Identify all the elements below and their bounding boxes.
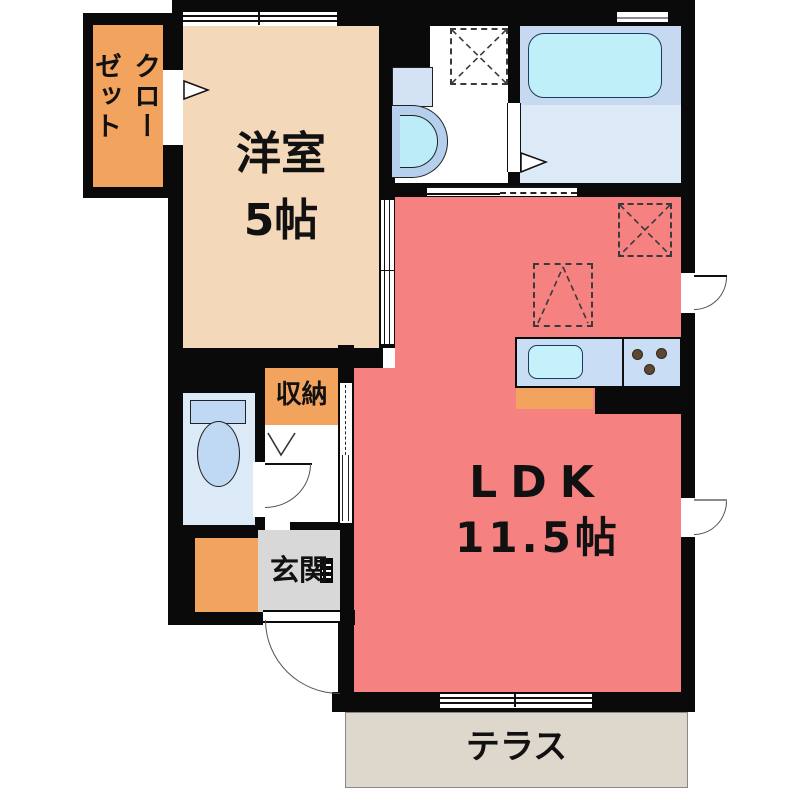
window-bathroom-small — [617, 12, 668, 22]
stove-burner — [632, 349, 643, 360]
wall — [681, 0, 695, 712]
window-casement-2 — [681, 498, 695, 537]
wall — [595, 388, 682, 414]
closet-label: クローゼット — [90, 52, 164, 164]
toilet-bowl — [197, 421, 240, 487]
washing-machine-space — [450, 28, 508, 85]
wall — [340, 610, 355, 625]
ldk-label: LDK — [395, 458, 681, 509]
window-top-sliding — [183, 12, 337, 26]
entrance-step — [195, 538, 258, 612]
stove-burner — [656, 348, 667, 359]
ldk-size: 11.5帖 — [395, 514, 681, 562]
window-terrace-sliding — [440, 694, 592, 708]
stove-burner — [644, 364, 655, 375]
door-toilet-swing — [265, 464, 311, 508]
wall — [168, 368, 265, 393]
western-room-size: 5帖 — [183, 196, 379, 247]
refrigerator-space — [618, 203, 672, 257]
kitchen-step — [516, 388, 593, 409]
floor-plan: クローゼット 洋室 5帖 LDK 11.5帖 収納 玄関 テラス — [0, 0, 800, 800]
door-western-ldk-sliding — [381, 200, 394, 344]
window-casement-2-swing — [694, 501, 727, 535]
terrace-label: テラス — [345, 728, 688, 767]
western-room-label: 洋室 — [183, 128, 379, 180]
door-entrance-swing — [265, 620, 340, 694]
door-bathroom — [507, 103, 521, 172]
room-western — [183, 26, 379, 348]
wall — [168, 393, 183, 538]
door-closet-opening — [163, 70, 183, 145]
door-washroom-sliding — [427, 186, 577, 196]
door-toilet-leaf — [253, 462, 265, 517]
door-hall-ldk-sliding — [340, 383, 352, 523]
entrance-label: 玄関 — [256, 554, 342, 587]
bathtub-fixture — [528, 33, 662, 98]
wall — [168, 610, 263, 625]
washroom-counter — [392, 67, 433, 107]
kitchen-sink — [528, 345, 583, 379]
storage-door-v — [268, 433, 295, 455]
window-casement-1-swing — [694, 277, 727, 310]
wall — [168, 530, 195, 612]
window-casement-1 — [681, 273, 695, 313]
wall — [392, 26, 430, 67]
bathroom-floor — [520, 105, 681, 183]
dining-space — [533, 263, 593, 327]
wall — [168, 13, 183, 348]
storage-label: 収納 — [265, 381, 338, 411]
